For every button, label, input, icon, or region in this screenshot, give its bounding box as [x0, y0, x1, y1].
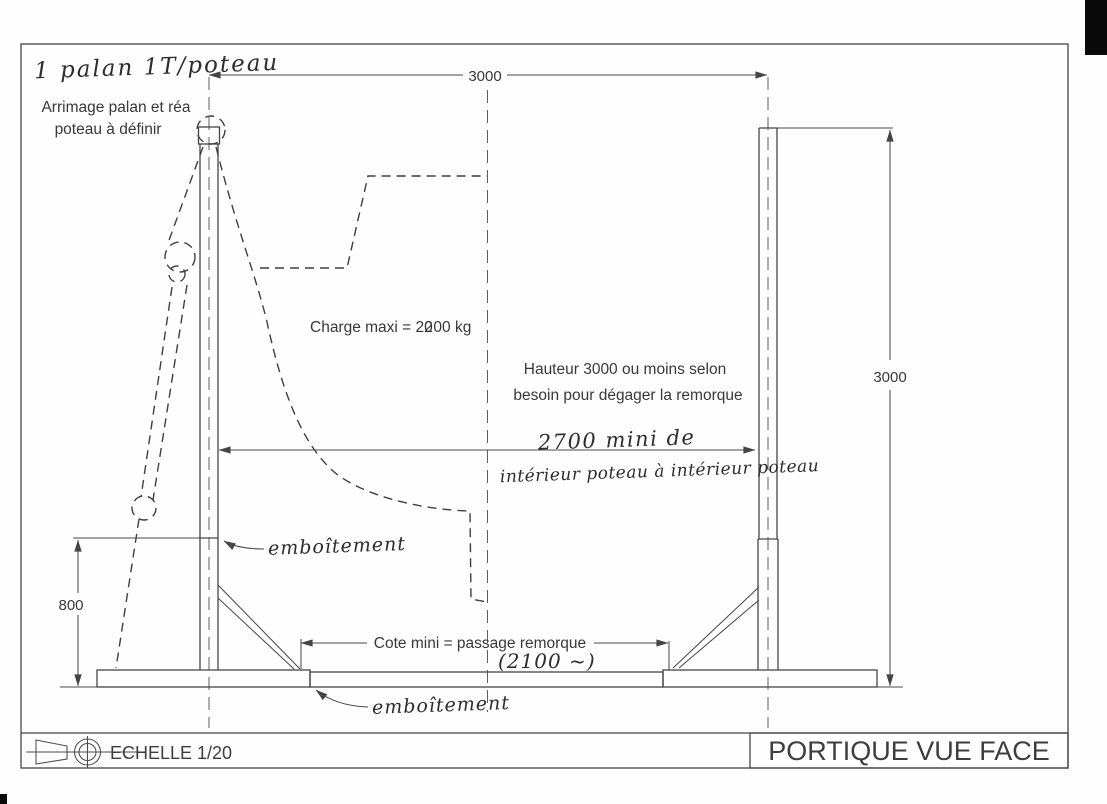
portique-drawing: 3000 3000 800 2700 mini de intérieur pot… [0, 0, 1107, 804]
palan-lower-hook-circle [132, 496, 156, 520]
view-title: PORTIQUE VUE FACE [768, 736, 1050, 766]
dimension-top-width: 3000 [209, 68, 767, 85]
scan-artifact-top-right [1085, 0, 1107, 55]
load-step-outline [260, 176, 487, 268]
base-center-beam [310, 672, 663, 687]
load-curve [216, 147, 487, 602]
scale-label: ECHELLE 1/20 [110, 743, 232, 763]
charge-note: Charge maxi = 20200 kg [310, 319, 471, 336]
dimension-passage: Cote mini = passage remorque (2100 ~) [301, 635, 669, 673]
title-block: ECHELLE 1/20 PORTIQUE VUE FACE [21, 733, 1068, 768]
hauteur-note: Hauteur 3000 ou moins selon besoin pour … [513, 361, 742, 404]
emboitement-top-callout: emboîtement [224, 533, 406, 560]
left-post-brace [218, 585, 300, 669]
base-left-section [97, 670, 310, 687]
drawing-sheet: 3000 3000 800 2700 mini de intérieur pot… [0, 0, 1107, 804]
emboitement-top-arrow [224, 541, 264, 549]
arrimage-note: Arrimage palan et réa poteau à définir [41, 99, 190, 138]
arrimage-note-line1: Arrimage palan et réa [41, 99, 190, 116]
dim-right-value: 3000 [873, 369, 906, 386]
arrimage-note-line2: poteau à définir [55, 121, 162, 138]
left-post [199, 127, 301, 670]
dimension-inner-span: 2700 mini de intérieur poteau à intérieu… [219, 425, 820, 487]
rea-pulley-circle [197, 116, 225, 144]
dimension-left-height: 800 [58, 538, 218, 687]
dim-top-value: 3000 [468, 68, 501, 85]
base-right-section [663, 670, 877, 687]
hauteur-note-line1: Hauteur 3000 ou moins selon [524, 361, 727, 378]
dim-passage-value: (2100 ~) [498, 649, 596, 673]
dimension-right-height: 3000 [777, 128, 907, 687]
palan-body-lines [141, 285, 187, 500]
dim-left-value: 800 [58, 597, 83, 614]
scan-artifact-bottom-left [0, 794, 7, 804]
hoist-note: 1 palan 1T/poteau [34, 50, 280, 85]
charge-note-overstruck-b: 2 [424, 319, 433, 336]
emboitement-bottom-callout: emboîtement [316, 690, 510, 719]
emboitement-top-label: emboîtement [268, 533, 407, 560]
palan-chain-bottom [116, 519, 139, 668]
emboitement-bottom-label: emboîtement [372, 692, 511, 719]
dim-span-note-line2: intérieur poteau à intérieur poteau [500, 456, 820, 487]
emboitement-bottom-arrow [316, 690, 368, 707]
palan-hook-circle [169, 266, 185, 282]
hauteur-note-line2: besoin pour dégager la remorque [513, 387, 742, 404]
palan-block-circle [165, 242, 195, 272]
right-post-brace [673, 587, 759, 668]
charge-note-suffix: 00 kg [433, 319, 471, 336]
load-outline [216, 147, 487, 602]
charge-note-prefix: Charge maxi = 2 [310, 319, 424, 336]
palan-chain-left [168, 147, 203, 243]
